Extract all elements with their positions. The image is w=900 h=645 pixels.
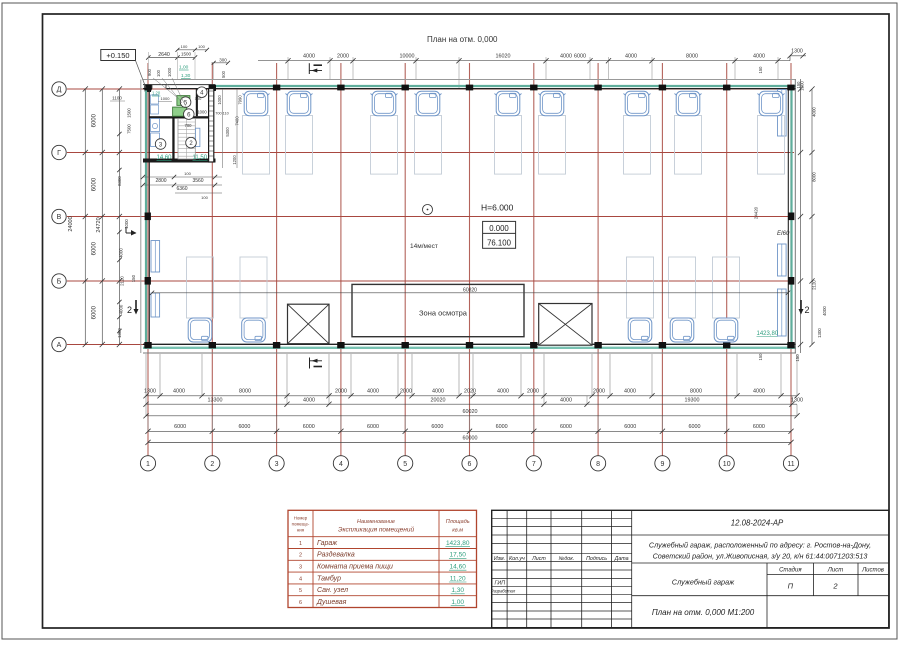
- svg-text:2: 2: [299, 553, 302, 559]
- svg-text:4000: 4000: [303, 398, 315, 404]
- svg-text:1500: 1500: [181, 51, 192, 56]
- svg-text:0.000: 0.000: [489, 224, 509, 233]
- svg-text:Душевая: Душевая: [316, 599, 347, 606]
- svg-text:EI60: EI60: [777, 231, 790, 237]
- svg-text:4000: 4000: [560, 54, 572, 60]
- svg-text:1300: 1300: [791, 398, 803, 404]
- svg-text:Лист: Лист: [531, 556, 546, 562]
- svg-text:16020: 16020: [496, 54, 511, 60]
- svg-text:8: 8: [596, 461, 600, 468]
- svg-text:2: 2: [127, 305, 132, 315]
- svg-text:2000: 2000: [593, 388, 605, 394]
- svg-text:1300: 1300: [800, 81, 805, 91]
- svg-text:помеще-: помеще-: [292, 522, 310, 527]
- svg-text:4: 4: [299, 576, 302, 582]
- svg-text:24420: 24420: [754, 206, 759, 219]
- svg-text:5: 5: [299, 588, 302, 594]
- svg-text:1300: 1300: [144, 388, 156, 394]
- svg-text:План на отм. 0,000 М1:200: План на отм. 0,000 М1:200: [652, 608, 755, 617]
- svg-text:10: 10: [723, 461, 731, 468]
- svg-text:6000: 6000: [92, 177, 98, 191]
- svg-text:Служебный гараж: Служебный гараж: [672, 578, 735, 587]
- svg-text:76.100: 76.100: [487, 239, 512, 248]
- svg-text:Подпись: Подпись: [586, 556, 607, 562]
- svg-text:№док.: №док.: [559, 556, 575, 562]
- svg-text:Служебный гараж, расположенны: Служебный гараж, расположенный по адресу…: [649, 541, 871, 550]
- svg-text:11,50: 11,50: [193, 155, 208, 161]
- svg-text:2: 2: [210, 461, 214, 468]
- svg-text:2: 2: [832, 582, 838, 591]
- svg-text:24720: 24720: [96, 217, 102, 232]
- svg-text:1,20: 1,20: [152, 91, 161, 96]
- svg-text:300: 300: [219, 57, 227, 62]
- svg-text:100: 100: [195, 96, 202, 101]
- svg-text:4: 4: [339, 461, 343, 468]
- svg-text:1,00: 1,00: [179, 65, 189, 71]
- svg-text:Стадия: Стадия: [779, 568, 802, 574]
- svg-text:150: 150: [758, 353, 763, 361]
- svg-text:4000: 4000: [497, 388, 509, 394]
- svg-text:4000: 4000: [173, 388, 185, 394]
- svg-text:Советский район, ул.Живописная: Советский район, ул.Живописная, з/у 20, …: [653, 552, 868, 561]
- svg-text:1000: 1000: [197, 110, 207, 115]
- svg-text:Раздевалка: Раздевалка: [317, 551, 355, 559]
- svg-text:Экспликация помещений: Экспликация помещений: [338, 526, 415, 534]
- svg-text:8300: 8300: [117, 176, 122, 186]
- svg-text:14,60: 14,60: [157, 155, 173, 161]
- svg-text:2120: 2120: [120, 276, 125, 286]
- svg-text:1300: 1300: [817, 328, 822, 338]
- svg-text:4000: 4000: [753, 388, 765, 394]
- svg-text:700 110: 700 110: [215, 112, 228, 116]
- svg-text:2000: 2000: [527, 388, 539, 394]
- svg-text:1423,80: 1423,80: [757, 331, 779, 337]
- svg-text:6000: 6000: [753, 424, 765, 430]
- svg-text:1100: 1100: [112, 96, 122, 101]
- svg-text:700: 700: [185, 123, 193, 128]
- svg-text:1200: 1200: [232, 155, 237, 165]
- svg-text:2640: 2640: [158, 52, 170, 58]
- svg-text:8000: 8000: [686, 54, 698, 60]
- svg-text:8000: 8000: [239, 388, 251, 394]
- svg-text:1,00: 1,00: [451, 599, 464, 606]
- svg-text:8000: 8000: [812, 172, 817, 182]
- svg-text:19300: 19300: [685, 398, 700, 404]
- svg-text:6000: 6000: [92, 241, 98, 255]
- svg-text:4000: 4000: [367, 388, 379, 394]
- svg-text:6000: 6000: [367, 424, 379, 430]
- svg-text:13300: 13300: [208, 398, 223, 404]
- svg-text:20020: 20020: [431, 398, 446, 404]
- svg-text:H=6.000: H=6.000: [481, 203, 514, 213]
- svg-text:1000: 1000: [161, 96, 171, 101]
- svg-text:кв.м: кв.м: [452, 528, 463, 534]
- svg-text:4000: 4000: [432, 388, 444, 394]
- svg-text:Площадь: Площадь: [446, 519, 470, 525]
- svg-text:6000: 6000: [92, 113, 98, 127]
- svg-text:Номер: Номер: [294, 516, 308, 521]
- svg-text:2000: 2000: [337, 54, 349, 60]
- svg-text:6000: 6000: [92, 305, 98, 319]
- svg-text:Б: Б: [57, 279, 62, 286]
- svg-text:2000: 2000: [335, 388, 347, 394]
- svg-text:Д: Д: [57, 87, 62, 94]
- svg-text:900: 900: [147, 68, 152, 76]
- svg-text:Лист: Лист: [827, 568, 843, 574]
- svg-text:24000: 24000: [68, 216, 74, 231]
- svg-text:100: 100: [181, 44, 188, 49]
- svg-text:4000: 4000: [625, 54, 637, 60]
- svg-text:1: 1: [299, 541, 302, 547]
- svg-text:2000: 2000: [400, 388, 412, 394]
- svg-text:6000: 6000: [496, 424, 508, 430]
- svg-text:1000: 1000: [167, 67, 172, 77]
- svg-text:1000: 1000: [217, 95, 222, 105]
- svg-text:6000: 6000: [574, 54, 586, 60]
- svg-text:150: 150: [795, 354, 800, 362]
- svg-text:14,60: 14,60: [450, 564, 467, 571]
- svg-text:5300: 5300: [225, 127, 230, 137]
- svg-text:4000: 4000: [812, 107, 817, 117]
- svg-text:100: 100: [156, 69, 161, 77]
- svg-text:4000: 4000: [303, 54, 315, 60]
- svg-text:11,20: 11,20: [450, 575, 466, 582]
- svg-text:Тамбур: Тамбур: [317, 574, 341, 582]
- svg-text:2120: 2120: [812, 280, 817, 290]
- svg-text:Комната приема пищи: Комната приема пищи: [317, 564, 393, 571]
- svg-text:2020: 2020: [464, 388, 476, 394]
- svg-text:1,30: 1,30: [451, 587, 464, 594]
- svg-text:Сан. узел: Сан. узел: [317, 587, 348, 594]
- svg-text:3560: 3560: [192, 178, 203, 184]
- svg-text:ГИП: ГИП: [495, 581, 506, 587]
- svg-text:Листов: Листов: [861, 568, 884, 574]
- svg-text:7990: 7990: [238, 95, 243, 105]
- svg-text:6000: 6000: [238, 424, 250, 430]
- svg-text:7400: 7400: [235, 116, 240, 126]
- svg-text:3: 3: [299, 565, 302, 571]
- svg-text:6000: 6000: [560, 424, 572, 430]
- svg-text:60820: 60820: [463, 287, 477, 293]
- svg-text:6: 6: [468, 461, 472, 468]
- svg-text:150: 150: [131, 274, 136, 282]
- svg-text:60000: 60000: [463, 436, 478, 442]
- svg-text:100: 100: [184, 171, 191, 176]
- svg-text:Гараж: Гараж: [317, 540, 338, 547]
- svg-text:8000: 8000: [690, 388, 702, 394]
- svg-text:11: 11: [787, 461, 794, 468]
- svg-text:Зона осмотра: Зона осмотра: [419, 309, 468, 318]
- svg-text:4000: 4000: [119, 248, 124, 258]
- svg-text:Г: Г: [57, 150, 61, 157]
- svg-text:6: 6: [299, 600, 302, 606]
- svg-text:6000: 6000: [431, 424, 443, 430]
- svg-text:150: 150: [758, 66, 763, 74]
- svg-text:9: 9: [660, 461, 664, 468]
- svg-text:План на отм. 0,000: План на отм. 0,000: [427, 35, 498, 44]
- svg-text:500: 500: [221, 70, 226, 78]
- svg-text:Изм.: Изм.: [494, 556, 505, 562]
- svg-text:1300: 1300: [791, 49, 803, 55]
- svg-text:Разработал: Разработал: [491, 588, 516, 593]
- svg-text:Кол.уч: Кол.уч: [509, 556, 525, 562]
- svg-text:60020: 60020: [463, 409, 478, 415]
- svg-text:7: 7: [532, 461, 536, 468]
- svg-text:6000: 6000: [174, 424, 186, 430]
- svg-text:4000: 4000: [753, 54, 765, 60]
- svg-text:12.08-2024-АР: 12.08-2024-АР: [731, 519, 784, 528]
- svg-text:1500: 1500: [127, 108, 132, 118]
- svg-text:1: 1: [146, 461, 150, 468]
- svg-text:1300: 1300: [117, 328, 122, 338]
- svg-text:ния: ния: [297, 528, 305, 533]
- svg-text:10000: 10000: [400, 54, 415, 60]
- svg-text:В: В: [57, 214, 62, 221]
- svg-text:4000: 4000: [822, 306, 827, 316]
- svg-text:6360: 6360: [176, 186, 187, 192]
- svg-text:+0.150: +0.150: [106, 51, 129, 60]
- svg-text:Наименование: Наименование: [357, 519, 395, 525]
- svg-text:6000: 6000: [624, 424, 636, 430]
- svg-text:4000: 4000: [119, 304, 124, 314]
- svg-text:5: 5: [403, 461, 407, 468]
- svg-text:2: 2: [805, 305, 810, 315]
- svg-text:2800: 2800: [155, 178, 166, 184]
- svg-text:4000: 4000: [560, 398, 572, 404]
- svg-text:4000: 4000: [624, 388, 636, 394]
- svg-text:7500: 7500: [127, 124, 132, 134]
- svg-text:6000: 6000: [303, 424, 315, 430]
- svg-text:17,50: 17,50: [450, 552, 467, 559]
- svg-text:П: П: [788, 582, 794, 591]
- svg-text:3: 3: [275, 461, 279, 468]
- svg-text:100: 100: [201, 195, 208, 200]
- svg-text:6000: 6000: [689, 424, 701, 430]
- svg-text:14м/мест: 14м/мест: [410, 243, 438, 250]
- svg-text:1,30: 1,30: [181, 73, 191, 79]
- svg-text:1423,80: 1423,80: [446, 540, 470, 547]
- svg-text:Дата: Дата: [614, 556, 629, 562]
- svg-text:А: А: [57, 342, 62, 349]
- svg-text:100: 100: [198, 44, 205, 49]
